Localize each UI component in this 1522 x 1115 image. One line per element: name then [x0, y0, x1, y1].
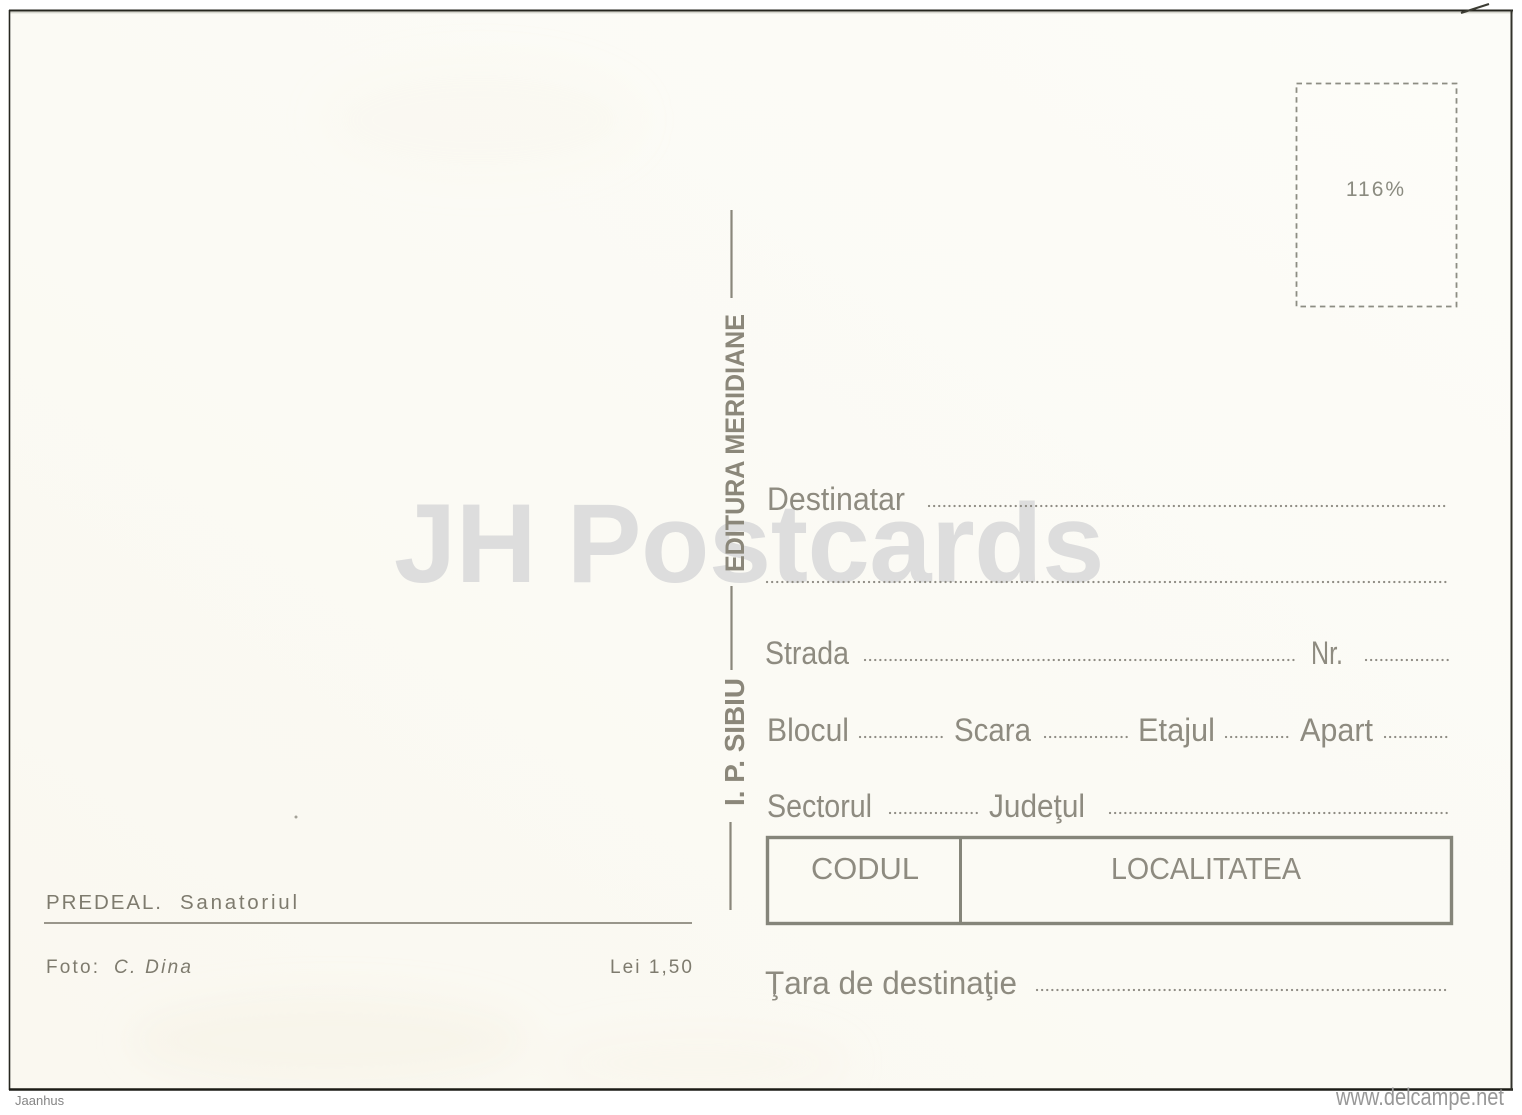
svg-text:Blocul: Blocul [767, 712, 849, 748]
svg-text:Strada: Strada [765, 635, 849, 671]
svg-text:Apart: Apart [1300, 712, 1373, 748]
svg-text:Sectorul: Sectorul [767, 788, 872, 824]
svg-text:C. Dina: C. Dina [114, 957, 191, 978]
svg-text:EDITURA MERIDIANE: EDITURA MERIDIANE [720, 314, 750, 572]
svg-text:116%: 116% [1346, 178, 1406, 201]
svg-text:Etajul: Etajul [1138, 712, 1215, 748]
svg-text:Destinatar: Destinatar [767, 481, 905, 517]
svg-text:CODUL: CODUL [811, 851, 919, 886]
svg-text:Judeţul: Judeţul [989, 788, 1085, 824]
svg-text:www.delcampe.net: www.delcampe.net [1335, 1084, 1504, 1110]
svg-text:Sanatoriul: Sanatoriul [180, 891, 297, 914]
svg-text:Nr.: Nr. [1311, 635, 1343, 671]
svg-text:I. P. SIBIU: I. P. SIBIU [719, 678, 750, 806]
svg-text:Ţara de destinaţie: Ţara de destinaţie [765, 965, 1017, 1001]
svg-text:PREDEAL.: PREDEAL. [46, 891, 161, 914]
svg-text:Foto:: Foto: [46, 957, 98, 978]
svg-text:Scara: Scara [954, 712, 1031, 748]
svg-text:LOCALITATEA: LOCALITATEA [1111, 851, 1301, 886]
svg-text:Jaanhus: Jaanhus [15, 1093, 65, 1108]
